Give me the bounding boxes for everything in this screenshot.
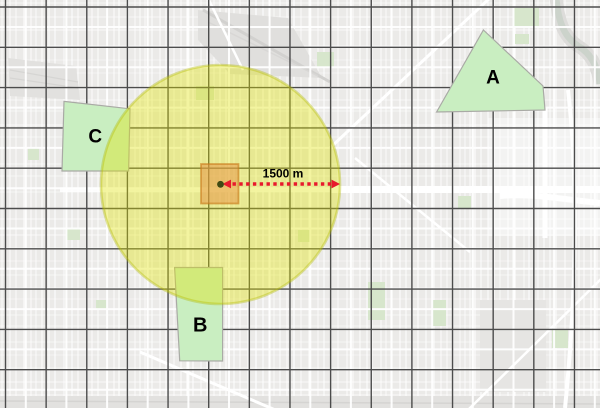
svg-text:A: A (486, 68, 500, 89)
svg-text:C: C (88, 127, 102, 148)
svg-text:B: B (193, 315, 207, 337)
svg-text:1500 m: 1500 m (263, 167, 304, 181)
